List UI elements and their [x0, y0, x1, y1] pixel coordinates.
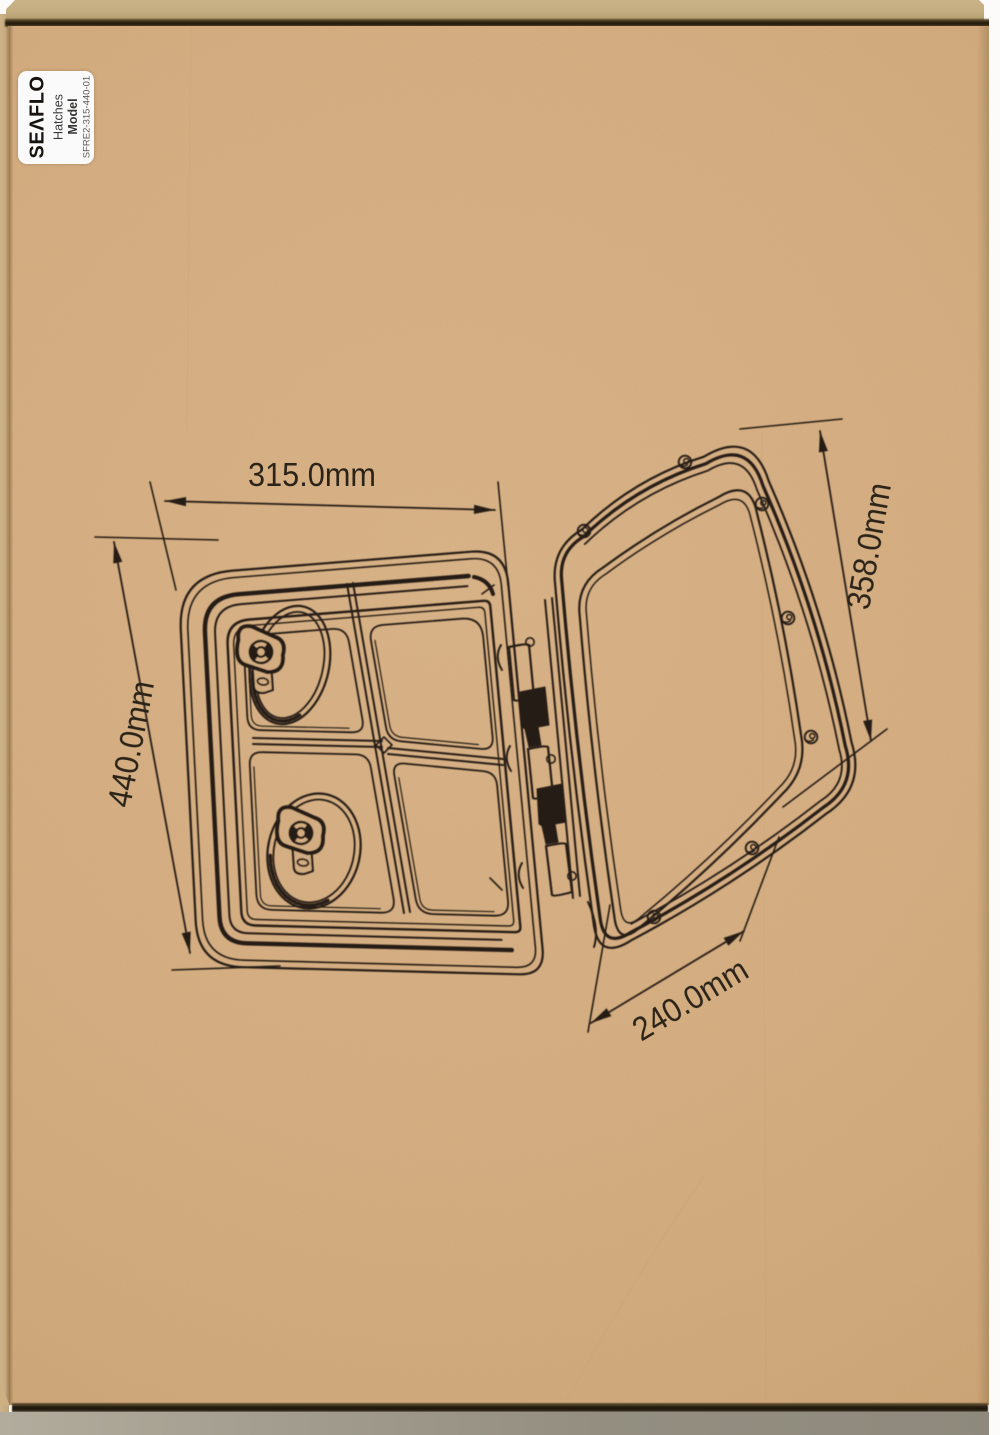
svg-text:315.0mm: 315.0mm: [248, 456, 376, 493]
